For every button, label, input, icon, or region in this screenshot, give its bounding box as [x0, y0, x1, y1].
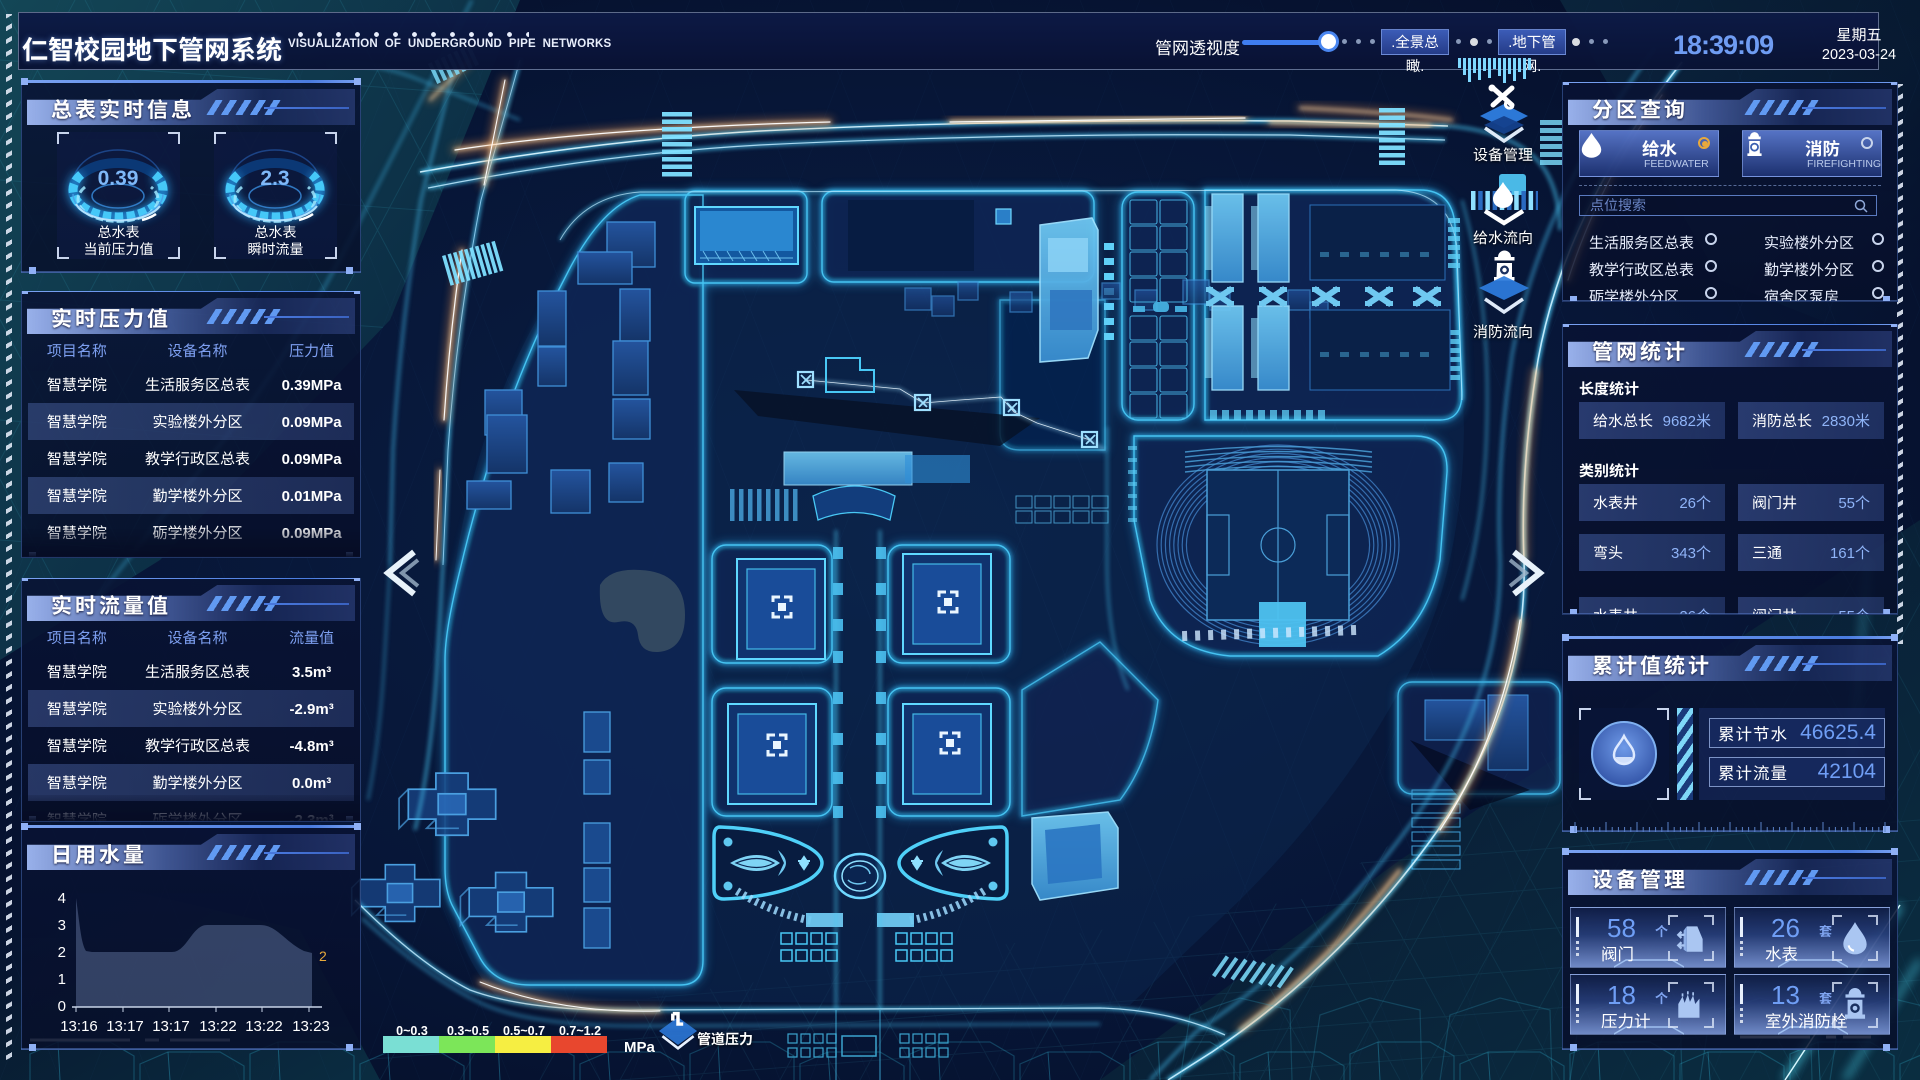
svg-text:0: 0	[58, 998, 66, 1015]
svg-text:13:17: 13:17	[152, 1018, 190, 1035]
svg-text:13:16: 13:16	[60, 1018, 98, 1035]
svg-text:13:22: 13:22	[245, 1018, 283, 1035]
svg-text:0.39: 0.39	[98, 167, 139, 190]
svg-text:4: 4	[58, 890, 66, 907]
svg-text:13:22: 13:22	[199, 1018, 237, 1035]
svg-text:2: 2	[319, 948, 327, 964]
svg-text:1: 1	[58, 971, 66, 988]
svg-text:13:23: 13:23	[292, 1018, 330, 1035]
svg-text:13:17: 13:17	[106, 1018, 144, 1035]
svg-text:2: 2	[58, 944, 66, 961]
svg-text:3: 3	[58, 917, 66, 934]
svg-text:2.3: 2.3	[260, 167, 289, 190]
